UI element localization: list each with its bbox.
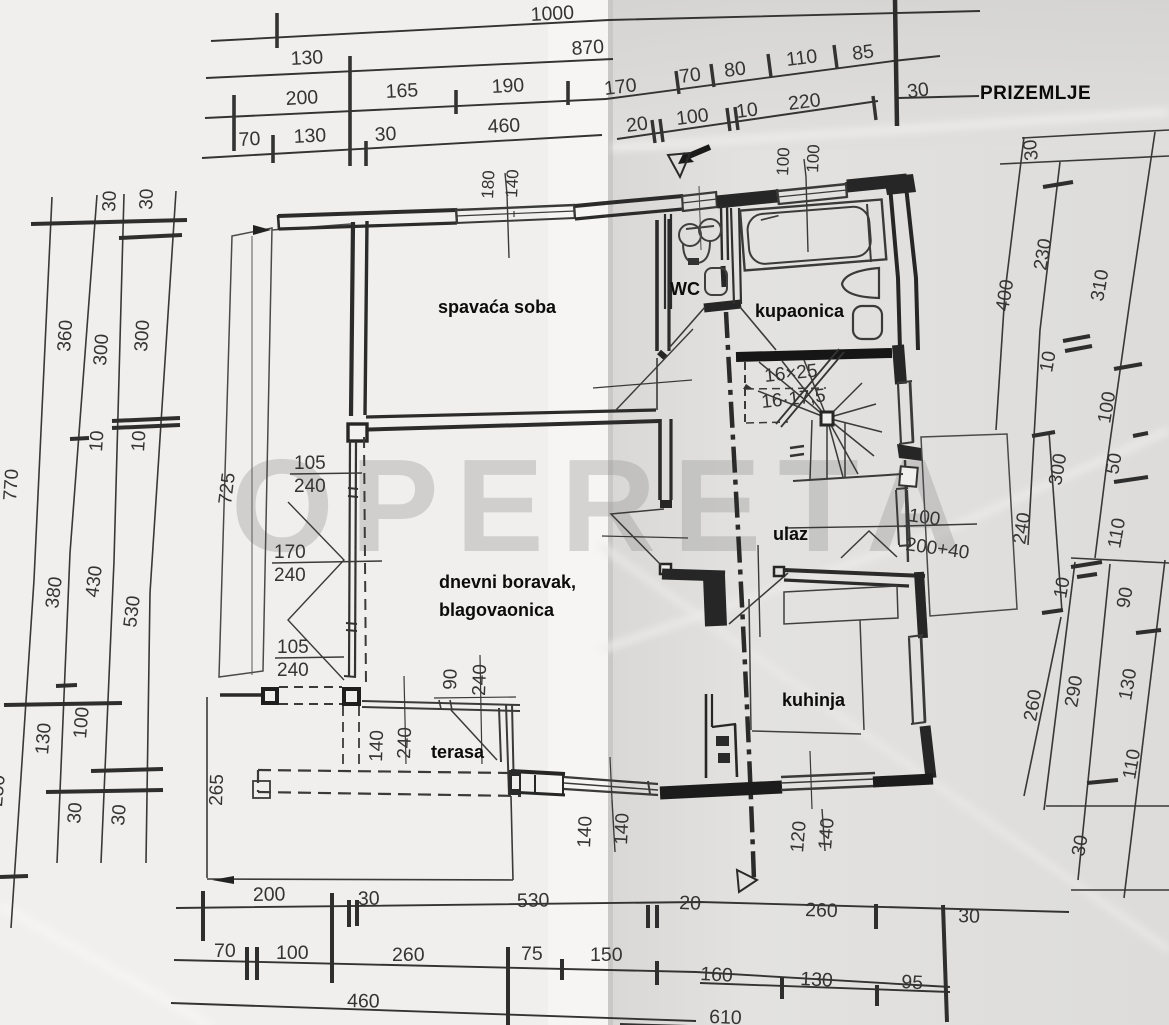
svg-text:30: 30	[64, 802, 87, 825]
svg-text:140: 140	[574, 816, 597, 849]
svg-text:30: 30	[108, 804, 131, 827]
svg-text:120: 120	[787, 820, 811, 853]
svg-text:260: 260	[805, 899, 838, 922]
svg-text:460: 460	[487, 114, 521, 138]
svg-text:130: 130	[293, 124, 327, 148]
svg-text:kupaonica: kupaonica	[755, 301, 845, 321]
svg-text:220: 220	[787, 89, 822, 115]
svg-text:100: 100	[675, 104, 710, 130]
svg-text:150: 150	[590, 944, 623, 966]
svg-text:430: 430	[82, 565, 107, 599]
svg-text:50: 50	[1102, 451, 1126, 475]
svg-text:130: 130	[290, 46, 324, 70]
svg-text:spavaća soba: spavaća soba	[438, 297, 557, 317]
svg-text:380: 380	[42, 576, 67, 610]
svg-text:240: 240	[294, 476, 326, 497]
svg-text:70: 70	[238, 128, 261, 151]
svg-text:130: 130	[800, 968, 834, 992]
svg-text:100: 100	[803, 144, 823, 173]
svg-text:70: 70	[214, 940, 236, 962]
svg-text:100: 100	[70, 706, 94, 739]
svg-text:265: 265	[206, 774, 228, 806]
svg-text:10: 10	[86, 430, 108, 453]
svg-text:85: 85	[851, 40, 875, 64]
svg-text:105: 105	[277, 637, 309, 658]
svg-text:10: 10	[128, 430, 150, 453]
svg-text:95: 95	[901, 971, 924, 994]
svg-text:10: 10	[735, 98, 759, 122]
svg-text:30: 30	[1068, 833, 1092, 857]
svg-text:530: 530	[517, 889, 550, 912]
svg-text:10: 10	[1050, 575, 1074, 599]
svg-text:70: 70	[678, 63, 702, 87]
svg-text:140: 140	[366, 730, 388, 762]
svg-text:170: 170	[603, 74, 638, 100]
svg-text:1000: 1000	[530, 2, 575, 26]
svg-text:170: 170	[274, 542, 306, 563]
svg-text:105: 105	[294, 453, 326, 474]
svg-text:100: 100	[276, 942, 309, 964]
svg-text:10: 10	[1036, 349, 1060, 373]
svg-text:770: 770	[0, 468, 23, 501]
svg-text:dnevni boravak,: dnevni boravak,	[439, 572, 576, 592]
svg-text:140: 140	[815, 817, 839, 850]
svg-text:30: 30	[99, 190, 121, 212]
svg-text:30: 30	[136, 188, 158, 210]
svg-text:530: 530	[120, 595, 145, 629]
svg-text:300: 300	[131, 319, 154, 352]
svg-text:360: 360	[54, 319, 77, 352]
svg-text:240: 240	[274, 565, 306, 586]
svg-text:30: 30	[958, 905, 981, 928]
svg-text:200: 200	[253, 883, 286, 906]
svg-text:75: 75	[521, 943, 543, 965]
svg-text:WC: WC	[670, 279, 700, 299]
svg-text:30: 30	[906, 78, 930, 102]
svg-text:240: 240	[277, 660, 309, 681]
svg-text:130: 130	[32, 722, 56, 755]
svg-text:blagovaonica: blagovaonica	[439, 600, 555, 620]
svg-text:180: 180	[478, 170, 498, 199]
svg-text:90: 90	[1113, 585, 1137, 609]
svg-text:kuhinja: kuhinja	[782, 690, 846, 710]
svg-text:100: 100	[773, 147, 793, 176]
svg-text:610: 610	[709, 1006, 742, 1025]
svg-text:300: 300	[90, 333, 113, 366]
svg-text:90: 90	[440, 668, 462, 690]
svg-text:110: 110	[785, 45, 819, 71]
svg-text:260: 260	[392, 944, 425, 966]
svg-text:OPERETA: OPERETA	[231, 432, 978, 579]
svg-text:870: 870	[571, 36, 605, 60]
svg-text:PRIZEMLJE: PRIZEMLJE	[980, 83, 1091, 104]
svg-text:terasa: terasa	[431, 742, 485, 762]
svg-text:20: 20	[679, 892, 702, 915]
svg-text:165: 165	[385, 79, 419, 103]
svg-text:20: 20	[625, 112, 649, 136]
svg-text:80: 80	[723, 57, 747, 81]
svg-text:30: 30	[1020, 138, 1043, 161]
svg-text:30: 30	[358, 888, 380, 910]
svg-text:ulaz: ulaz	[773, 524, 808, 544]
svg-text:190: 190	[491, 74, 525, 98]
svg-text:725: 725	[215, 472, 240, 506]
svg-text:200: 200	[285, 86, 319, 110]
svg-text:160: 160	[700, 963, 734, 987]
svg-text:460: 460	[347, 990, 380, 1013]
svg-text:30: 30	[374, 123, 397, 146]
